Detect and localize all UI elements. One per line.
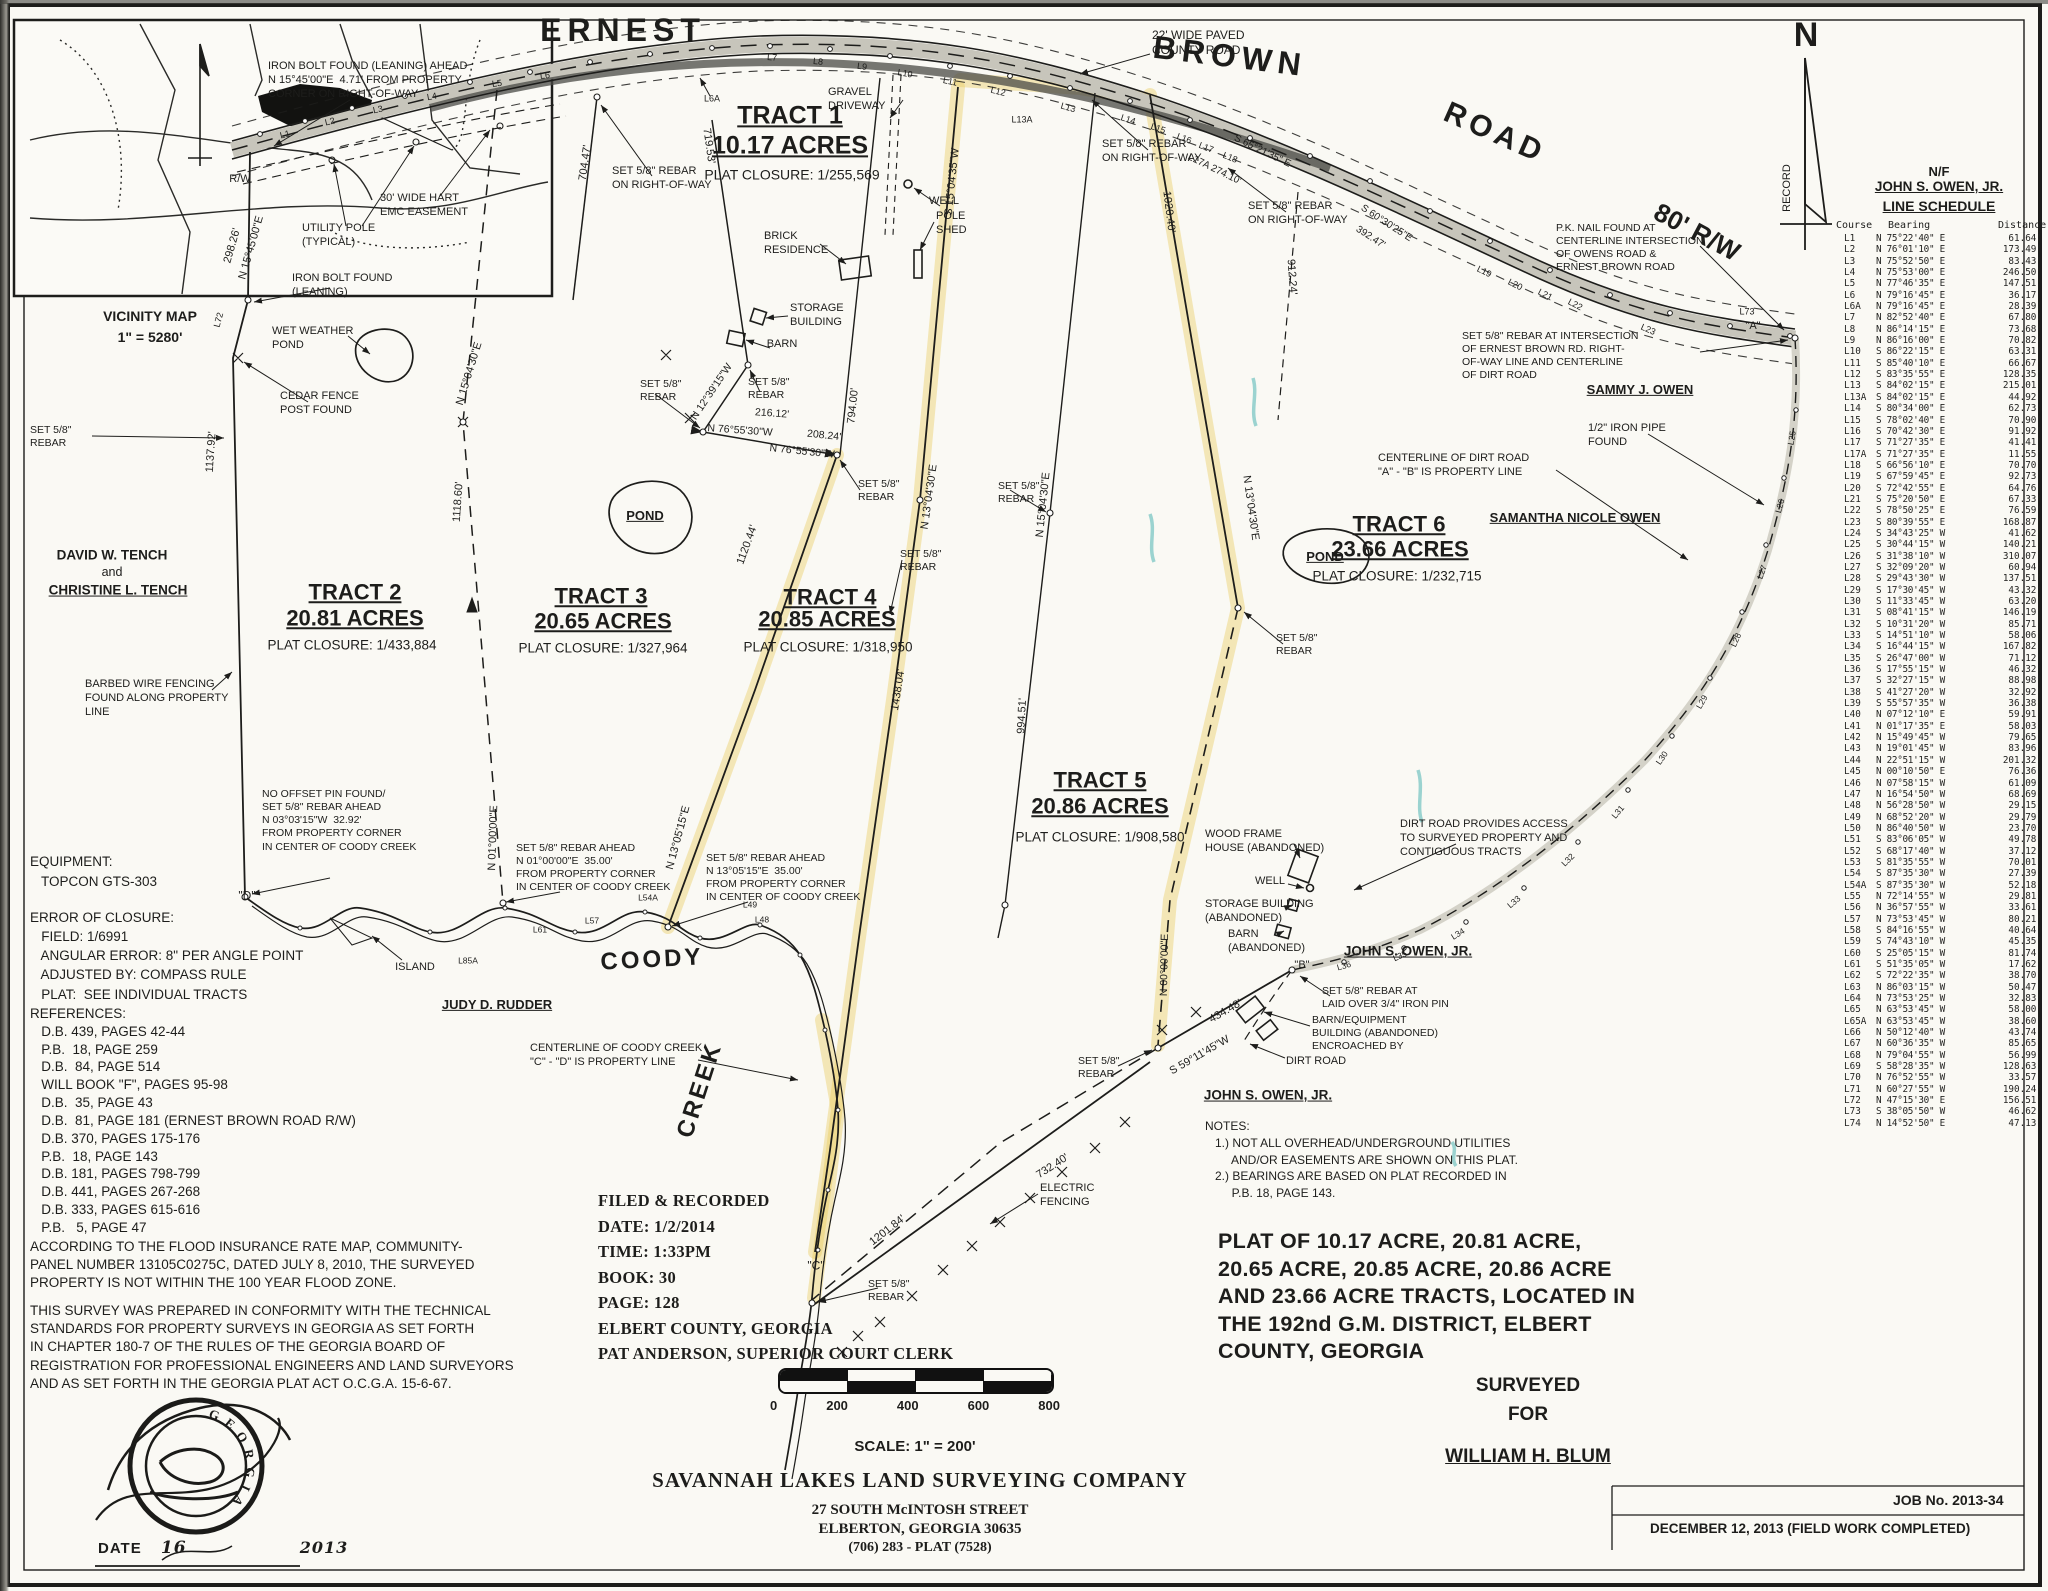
barn-equip-note: BARN/EQUIPMENT BUILDING (ABANDONED) ENCR… [1312,1014,1438,1053]
schedule-row-L74: L74N 14°52'50" E47.13' [1836,1118,2042,1129]
iron-pipe-note: 1/2" IRON PIPE FOUND [1588,422,1666,450]
schedule-row-L19: L19S 67°59'45" E92.73' [1836,471,2042,482]
schedule-row-L57: L57N 73°53'45" W80.21' [1836,914,2042,925]
cedar-fence-note: CEDAR FENCE POST FOUND [280,390,359,418]
equipment-block: EQUIPMENT: TOPCON GTS-303 [30,852,157,891]
company-address1: 27 SOUTH McINTOSH STREET [620,1502,1220,1519]
tract1-acres: 10.17 ACRES [712,130,868,161]
schedule-row-L24: L24S 34°43'25" W41.62' [1836,528,2042,539]
centerline-dirt-note: CENTERLINE OF DIRT ROAD "A" - "B" IS PRO… [1378,452,1529,480]
schedule-row-L9: L9N 86°16'00" E70.82' [1836,335,2042,346]
tract2-title: TRACT 2 [309,578,402,606]
schedule-row-L12: L12S 83°35'55" E128.35' [1836,369,2042,380]
schedule-row-L17A: L17AS 71°27'35" E11.55' [1836,449,2042,460]
schedule-row-L25: L25S 30°44'15" W140.21' [1836,539,2042,550]
surveyed-for-block: SURVEYED FOR WILLIAM H. BLUM [1418,1372,1638,1472]
schedule-row-L42: L42N 15°49'45" W79.65' [1836,732,2042,743]
schedule-row-L21: L21S 75°20'50" E67.33' [1836,494,2042,505]
schedule-row-L2: L2N 76°01'10" E173.49' [1836,244,2042,255]
rebar-t6-mid-note: SET 5/8" REBAR [998,480,1039,506]
schedule-row-L18: L18S 66°56'10" E70.70' [1836,460,2042,471]
schedule-row-L29: L29S 17°30'45" W43.32' [1836,585,2042,596]
schedule-row-L13: L13S 84°02'15" E215.01' [1836,380,2042,391]
schedule-row-L41: L41N 01°17'35" E58.03' [1836,721,2042,732]
tract3-title: TRACT 3 [555,582,648,610]
tract2-acres: 20.81 ACRES [286,604,423,632]
company-address2: ELBERTON, GEORGIA 30635 [620,1521,1220,1538]
schedule-rows: L1N 75°22'40" E61.64'L2N 76°01'10" E173.… [1836,233,2042,1129]
schedule-row-L37: L37S 32°27'15" W88.98' [1836,675,2042,686]
tract4-closure: PLAT CLOSURE: 1/318,950 [743,640,912,657]
schedule-row-L49: L49N 68°52'20" W29.79' [1836,812,2042,823]
company-phone: (706) 283 - PLAT (7528) [620,1540,1220,1556]
schedule-row-L28: L28S 29°43'30" W137.51' [1836,573,2042,584]
record-north-record: RECORD [1781,164,1793,212]
schedule-row-L56: L56N 36°57'55" W33.61' [1836,902,2042,913]
field-work-date: DECEMBER 12, 2013 (FIELD WORK COMPLETED) [1650,1521,1970,1536]
scale-tick-400: 400 [897,1398,919,1413]
schedule-row-L23: L23S 80°39'55" E168.87' [1836,517,2042,528]
schedule-row-L70: L70N 76°52'55" W33.57' [1836,1072,2042,1083]
barn1-note: BARN [767,338,798,352]
owner-judy: JUDY D. RUDDER [442,997,552,1013]
schedule-column-headers: Course Bearing Distance [1836,220,2042,231]
label-l2: L2 [324,115,336,128]
surveyed-for-label: SURVEYED FOR [1418,1372,1638,1429]
schedule-row-L45: L45N 00°10'50" E76.36' [1836,766,2042,777]
label-l61: L61 [533,925,547,936]
corner-b-label: "B" [1294,959,1309,973]
rebar-se-note: SET 5/8" REBAR [1078,1055,1119,1081]
company-name: SAVANNAH LAKES LAND SURVEYING COMPANY [620,1468,1220,1493]
tract6-title: TRACT 6 [1353,510,1446,538]
schedule-row-L20: L20S 72°42'55" E64.76' [1836,483,2042,494]
schedule-row-L50: L50N 86°40'50" W23.70' [1836,823,2042,834]
schedule-row-L34: L34S 16°44'15" W167.82' [1836,641,2042,652]
notes-block: NOTES: 1.) NOT ALL OVERHEAD/UNDERGROUND … [1205,1118,1518,1202]
label-l8: L8 [812,56,823,68]
dirt-road [1242,335,1798,1044]
rebar-intersection-note: SET 5/8" REBAR AT INTERSECTION OF ERNEST… [1462,330,1638,383]
pond6-label: POND [1306,549,1344,565]
electric-fencing-note: ELECTRIC FENCING [1040,1182,1094,1210]
company-block: SAVANNAH LAKES LAND SURVEYING COMPANY 27… [620,1468,1220,1556]
vicinity-caption-scale: 1" = 5280' [60,327,240,348]
rebar-jog3-note: SET 5/8" REBAR [858,478,899,504]
tract5-acres: 20.86 ACRES [1031,792,1168,820]
schedule-row-L7: L7N 82°52'40" E67.80' [1836,312,2042,323]
schedule-row-L65: L65N 63°53'45" W58.00' [1836,1004,2042,1015]
schedule-row-L15: L15S 78°02'40" E70.90' [1836,415,2042,426]
pk-nail-note: P.K. NAIL FOUND AT CENTERLINE INTERSECTI… [1556,222,1704,275]
schedule-row-L71: L71N 60°27'55" W190.24' [1836,1084,2042,1095]
barn6-note: BARN (ABANDONED) [1228,928,1305,956]
rw-label: R/W [229,173,250,187]
schedule-row-L31: L31S 08°41'15" W146.19' [1836,607,2042,618]
schedule-row-L8: L8N 86°14'15" E73.68' [1836,324,2042,335]
corner-d-label: "D" [238,889,255,904]
plat-sheet: N RECORD G E O R G I A [0,0,2048,1591]
schedule-owner: JOHN S. OWEN, JR. [1836,179,2042,194]
schedule-row-L67: L67N 60°36'35" W85.65' [1836,1038,2042,1049]
scale-tick-200: 200 [826,1398,848,1413]
schedule-row-L27: L27S 32°09'20" W60.94' [1836,562,2042,573]
label-l6a: L6A [704,93,720,104]
schedule-row-L53: L53S 81°35'55" W70.01' [1836,857,2042,868]
schedule-nf: N/F [1836,164,2042,179]
schedule-row-L69: L69S 58°28'35" W128.63' [1836,1061,2042,1072]
rebar-row-left: SET 5/8" REBAR ON RIGHT-OF-WAY [612,165,712,193]
tract6-acres: 23.66 ACRES [1331,535,1468,563]
conformity-note: THIS SURVEY WAS PREPARED IN CONFORMITY W… [30,1302,514,1393]
record-north-arrow [1780,58,1832,250]
schedule-row-L43: L43N 19°01'45" W83.96' [1836,743,2042,754]
creek-name-coody: COODY [600,942,704,977]
schedule-row-L59: L59S 74°43'10" W45.35' [1836,936,2042,947]
schedule-row-L10: L10S 86°22'15" E63.31' [1836,346,2042,357]
schedule-row-L22: L22S 78°50'25" E76.59' [1836,505,2042,516]
schedule-row-L54: L54S 87°35'30" W27.39' [1836,868,2042,879]
scale-tick-800: 800 [1038,1398,1060,1413]
schedule-row-L4: L4N 75°53'00" E246.50' [1836,267,2042,278]
highlighter-marks [668,80,1238,1298]
tract1-closure: PLAT CLOSURE: 1/255,569 [704,166,879,184]
road-name-ernest: ERNEST [540,10,706,50]
storage1-note: STORAGE BUILDING [790,302,844,330]
label-l10: L10 [897,67,914,81]
schedule-title: LINE SCHEDULE [1836,198,2042,214]
date-year-handwritten: 2013 [300,1538,349,1557]
vicinity-caption: VICINITY MAP 1" = 5280' [60,306,240,348]
centerline-coody-note: CENTERLINE OF COODY CREEK "C" - "D" IS P… [530,1042,702,1070]
dist-994-51: 994.51' [1015,698,1031,734]
tract3-acres: 20.65 ACRES [534,607,671,635]
record-north-n: N [1794,16,1819,54]
schedule-row-L58: L58S 84°16'55" W40.64' [1836,925,2042,936]
rebar-ahead-c-note: SET 5/8" REBAR AHEAD N 13°05'15"E 35.00'… [706,852,860,905]
schedule-row-L60: L60S 25°05'15" W81.74' [1836,948,2042,959]
schedule-row-L6: L6N 79°16'45" E36.17' [1836,290,2042,301]
scale-tick-600: 600 [968,1398,990,1413]
schedule-row-L6A: L6AN 79°16'45" E28.39' [1836,301,2042,312]
date-label: DATE [98,1540,142,1557]
label-l85a: L85A [458,956,478,967]
schedule-row-L47: L47N 16°54'50" W68.69' [1836,789,2042,800]
dist-1137-92: 1137.92' [204,431,221,473]
owner-sammy: SAMMY J. OWEN [1587,382,1694,398]
closure-block: ERROR OF CLOSURE: FIELD: 1/6991 ANGULAR … [30,908,303,1004]
brick-residence-note: BRICK RESIDENCE [764,230,828,258]
schedule-row-L3: L3N 75°52'50" E83.43' [1836,256,2042,267]
schedule-row-L16: L16S 70°42'30" E91.92' [1836,426,2042,437]
label-l7: L7 [767,52,778,64]
certification-date-line: DATE 16 2013 [98,1538,348,1558]
scale-bar [778,1368,1054,1394]
schedule-row-L62: L62S 72°22'35" W38.70' [1836,970,2042,981]
no-offset-pin-note: NO OFFSET PIN FOUND/ SET 5/8" REBAR AHEA… [262,788,416,854]
schedule-row-L5: L5N 77°46'35" E147.51' [1836,278,2042,289]
schedule-row-L66: L66N 50°12'40" W43.74' [1836,1027,2042,1038]
tract4-acres: 20.85 ACRES [758,605,895,633]
schedule-row-L39: L39S 55°57'35" W36.38' [1836,698,2042,709]
label-l6: L6 [539,70,550,82]
label-l5: L5 [491,78,502,91]
schedule-row-L44: L44N 22°51'15" W201.32' [1836,755,2042,766]
owner-tench-1: DAVID W. TENCH [57,548,168,565]
island-label: ISLAND [395,961,435,975]
owner-tench-2: and [102,565,123,581]
scale-caption: SCALE: 1" = 200' [770,1438,1060,1455]
pond3-label: POND [626,508,664,524]
well1-note: WELL [929,195,959,209]
schedule-col-course: Course [1836,220,1888,231]
tract3-closure: PLAT CLOSURE: 1/327,964 [518,641,687,658]
schedule-row-L36: L36S 17°55'15" W46.32' [1836,664,2042,675]
label-l57: L57 [585,916,599,927]
dirt-road-label: DIRT ROAD [1286,1055,1346,1069]
storage6-note: STORAGE BUILDING (ABANDONED) [1205,898,1314,926]
vicinity-caption-title: VICINITY MAP [60,306,240,327]
tract5-title: TRACT 5 [1054,766,1147,794]
tract5-closure: PLAT CLOSURE: 1/908,580 [1015,830,1184,847]
schedule-row-L51: L51S 83°06'05" W49.78' [1836,834,2042,845]
county-road-note: 22' WIDE PAVED COUNTY ROAD [1152,28,1245,58]
surveyed-for-name: WILLIAM H. BLUM [1418,1443,1638,1472]
gravel-driveway-note: GRAVEL DRIVEWAY [828,86,885,114]
wood-frame-note: WOOD FRAME HOUSE (ABANDONED) [1205,828,1324,856]
owner-samantha: SAMANTHA NICOLE OWEN [1490,510,1661,526]
schedule-row-L64: L64N 73°53'25" W32.83' [1836,993,2042,1004]
iron-bolt-leaning-note: IRON BOLT FOUND (LEANING) [292,272,392,300]
tract1-title: TRACT 1 [737,100,843,131]
barbed-wire-note: BARBED WIRE FENCING FOUND ALONG PROPERTY… [85,678,228,719]
schedule-row-L11: L11S 85°40'10" E66.67' [1836,358,2042,369]
scan-top-shadow [0,0,2048,4]
schedule-row-L65A: L65AN 63°53'45" W38.60' [1836,1016,2042,1027]
owner-tench-3: CHRISTINE L. TENCH [49,583,188,600]
label-l4: L4 [426,91,438,104]
schedule-row-L46: L46N 07°58'15" W61.09' [1836,778,2042,789]
schedule-row-L63: L63N 86°03'15" W50.47' [1836,982,2042,993]
schedule-row-L52: L52S 68°17'40" W37.12' [1836,846,2042,857]
bearing-n010000e: N 01°00'00"E [486,805,502,871]
rebar-t6b-note: SET 5/8" REBAR [1276,632,1317,658]
rebar-jog2-note: SET 5/8" REBAR [748,376,789,402]
schedule-row-L17: L17S 71°27'35" E41.41' [1836,437,2042,448]
scale-tick-0: 0 [770,1398,777,1413]
job-number: JOB No. 2013-34 [1893,1492,2004,1508]
dist-1118-60: 1118.60' [451,481,468,522]
hart-easement-note: 30' WIDE HART EMC EASEMENT [380,192,468,220]
schedule-row-L48: L48N 56°28'50" W29.15' [1836,800,2042,811]
schedule-row-L35: L35S 26°47'00" W71.12' [1836,653,2042,664]
owner-owen-lower: JOHN S. OWEN, JR. [1204,1088,1332,1105]
label-l3: L3 [372,103,384,116]
flood-note: ACCORDING TO THE FLOOD INSURANCE RATE MA… [30,1238,474,1293]
schedule-row-L33: L33S 14°51'10" W58.06' [1836,630,2042,641]
rebar-jog1-note: SET 5/8" REBAR [640,378,681,404]
schedule-row-L13A: L13AS 84°02'15" E44.92' [1836,392,2042,403]
label-l13a: L13A [1011,114,1032,125]
schedule-row-L72: L72N 47°15'30" E156.51' [1836,1095,2042,1106]
schedule-row-L26: L26S 31°38'10" W310.07' [1836,551,2042,562]
label-l73: L73 [1739,306,1754,317]
scan-edge-shadow [0,0,9,1591]
well6-note: WELL [1255,875,1285,889]
schedule-row-L68: L68N 79°04'55" W56.99' [1836,1050,2042,1061]
filed-recorded-block: FILED & RECORDED DATE: 1/2/2014 TIME: 1:… [598,1188,953,1367]
dirt-access-note: DIRT ROAD PROVIDES ACCESS TO SURVEYED PR… [1400,818,1568,859]
rebar-row-l17: SET 5/8" REBAR ON RIGHT-OF-WAY [1248,200,1348,228]
wet-weather-pond-note: WET WEATHER POND [272,325,353,353]
schedule-row-L1: L1N 75°22'40" E61.64' [1836,233,2042,244]
label-l48: L48 [755,915,769,926]
schedule-row-L61: L61S 51°35'05" W17.62' [1836,959,2042,970]
pole-shed-note: POLE SHED [936,210,967,238]
dist-912-24: 912.24' [1283,259,1299,296]
label-l9: L9 [856,61,867,74]
scale-ticks: 0 200 400 600 800 [770,1398,1060,1413]
corner-a-label: "A" [1745,320,1760,334]
iron-bolt-ahead-note: IRON BOLT FOUND (LEANING) AHEAD N 15°45'… [268,60,467,101]
tract2-closure: PLAT CLOSURE: 1/433,884 [267,638,436,655]
schedule-row-L54A: L54AS 87°35'30" W52.18' [1836,880,2042,891]
schedule-row-L55: L55N 72°14'55" W29.81' [1836,891,2042,902]
date-day-handwritten: 16 [161,1538,187,1558]
rebar-ahead-b-note: SET 5/8" REBAR AHEAD N 01°00'00"E 35.00'… [516,842,670,895]
schedule-row-L30: L30S 11°33'45" W63.20' [1836,596,2042,607]
rebar-cmid-note: SET 5/8" REBAR [900,548,941,574]
utility-pole-note: UTILITY POLE (TYPICAL) [302,222,375,250]
schedule-row-L14: L14S 80°34'00" E62.73' [1836,403,2042,414]
references-block: REFERENCES: D.B. 439, PAGES 42-44 P.B. 1… [30,1005,356,1237]
bearing-n000000e: N 00°00'00"E [1158,934,1172,997]
schedule-row-L38: L38S 41°27'20" W32.92' [1836,687,2042,698]
line-schedule: N/F JOHN S. OWEN, JR. LINE SCHEDULE Cour… [1836,164,2042,1129]
tract6-closure: PLAT CLOSURE: 1/232,715 [1312,569,1481,586]
rebar-far-left: SET 5/8" REBAR [30,424,71,450]
rebar-b-note: SET 5/8" REBAR AT LAID OVER 3/4" IRON PI… [1322,985,1449,1011]
dist-216-12: 216.12' [755,406,790,421]
schedule-row-L40: L40N 07°12'10" E59.91' [1836,709,2042,720]
plat-title-block: PLAT OF 10.17 ACRE, 20.81 ACRE, 20.65 AC… [1218,1228,1635,1366]
schedule-col-distance: Distance [1998,220,2042,231]
schedule-row-L32: L32S 10°31'20" W85.71' [1836,619,2042,630]
schedule-col-bearing: Bearing [1888,220,1998,231]
schedule-row-L73: L73S 38°05'50" W46.62' [1836,1106,2042,1117]
